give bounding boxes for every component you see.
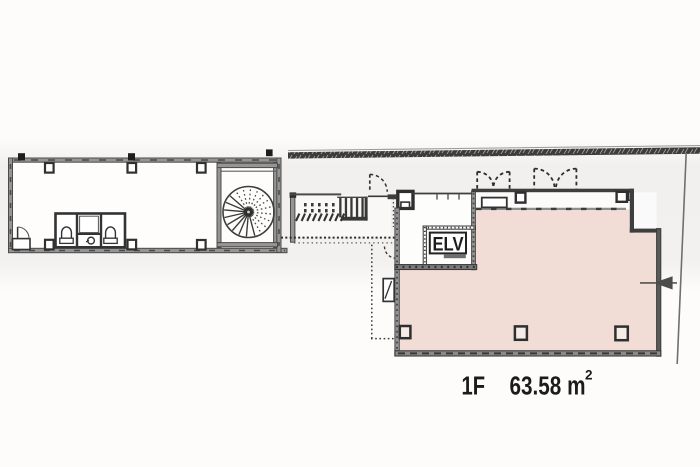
svg-text:1F: 1F bbox=[462, 373, 486, 401]
svg-text:ELV: ELV bbox=[433, 233, 464, 255]
svg-text:2: 2 bbox=[585, 368, 593, 383]
svg-text:63.58 m: 63.58 m bbox=[510, 373, 586, 401]
